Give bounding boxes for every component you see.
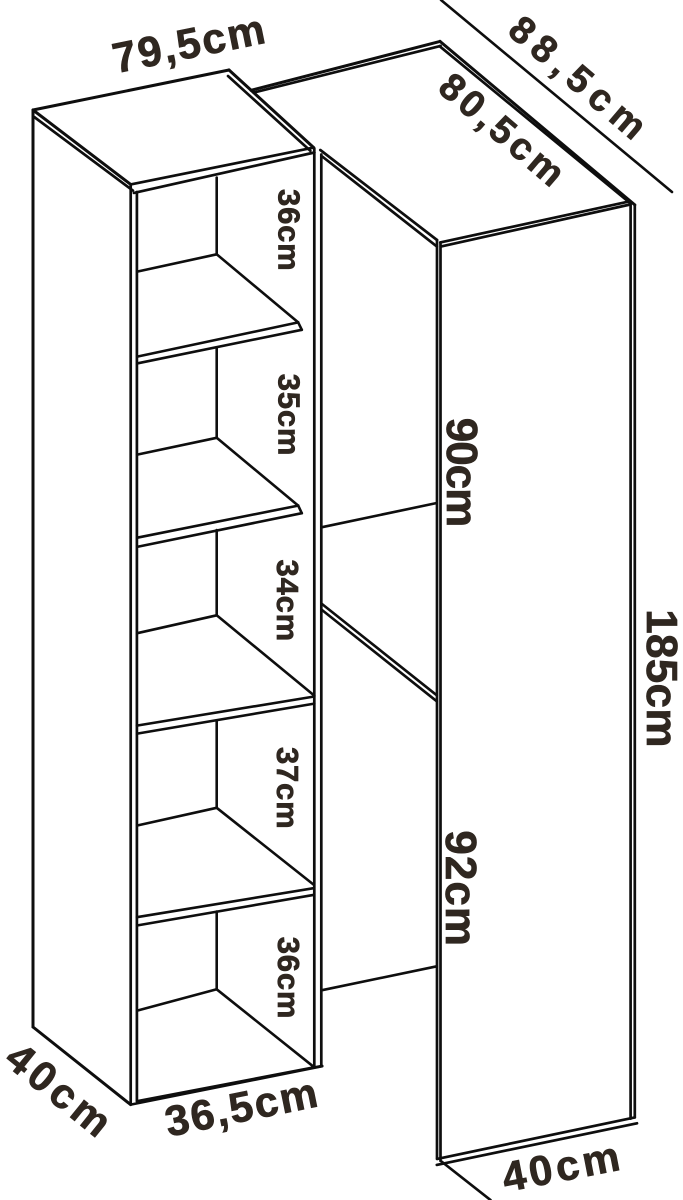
svg-text:36cm: 36cm <box>271 937 306 1020</box>
svg-text:36cm: 36cm <box>272 189 307 271</box>
svg-text:90cm: 90cm <box>437 418 486 527</box>
svg-text:35cm: 35cm <box>271 374 306 457</box>
svg-text:92cm: 92cm <box>436 830 485 947</box>
svg-text:185cm: 185cm <box>637 609 683 748</box>
svg-text:79,5cm: 79,5cm <box>109 6 271 83</box>
svg-text:37cm: 37cm <box>270 747 305 830</box>
svg-text:34cm: 34cm <box>270 560 305 643</box>
